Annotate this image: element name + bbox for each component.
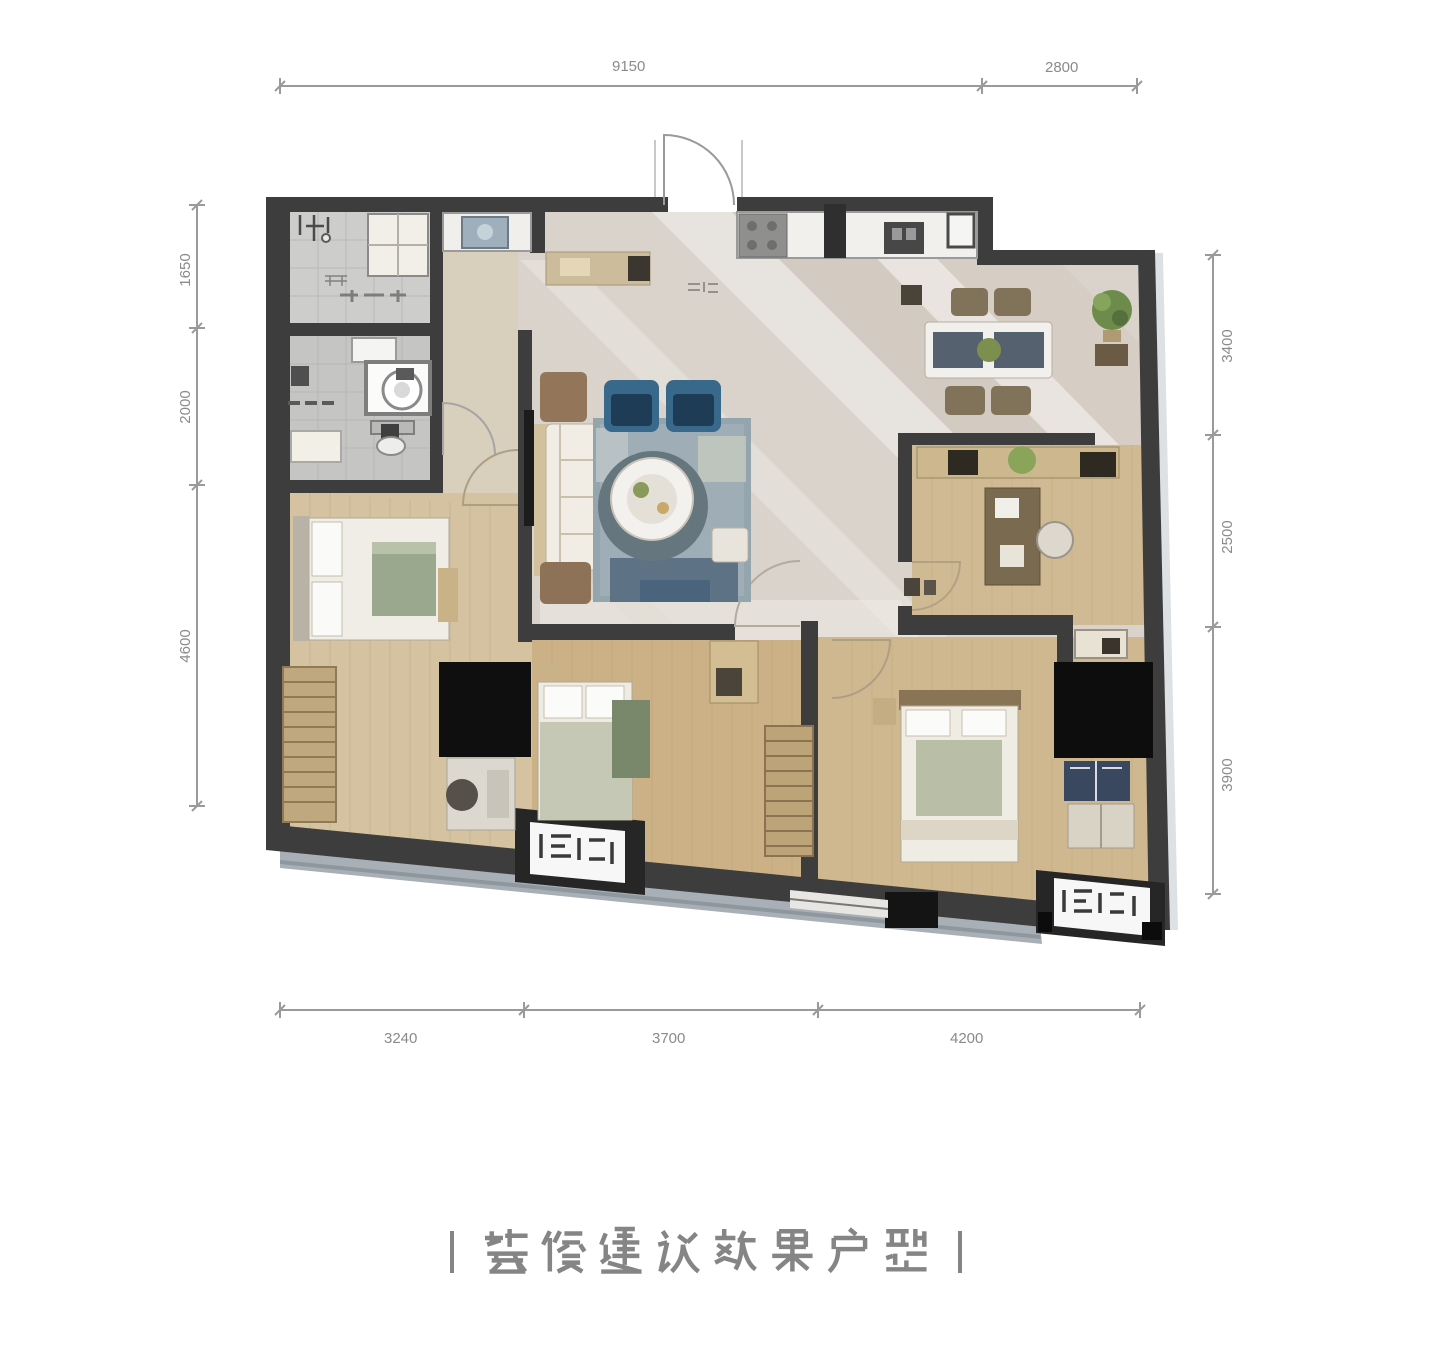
svg-text:2800: 2800	[1045, 59, 1078, 76]
svg-text:2500: 2500	[1219, 520, 1236, 553]
svg-text:9150: 9150	[612, 58, 645, 75]
svg-text:3700: 3700	[652, 1030, 685, 1047]
svg-text:3400: 3400	[1219, 329, 1236, 362]
svg-text:3240: 3240	[384, 1030, 417, 1047]
svg-text:3900: 3900	[1219, 758, 1236, 791]
svg-text:1650: 1650	[177, 253, 194, 286]
svg-text:2000: 2000	[177, 390, 194, 423]
svg-text:4600: 4600	[177, 629, 194, 662]
svg-text:4200: 4200	[950, 1030, 983, 1047]
